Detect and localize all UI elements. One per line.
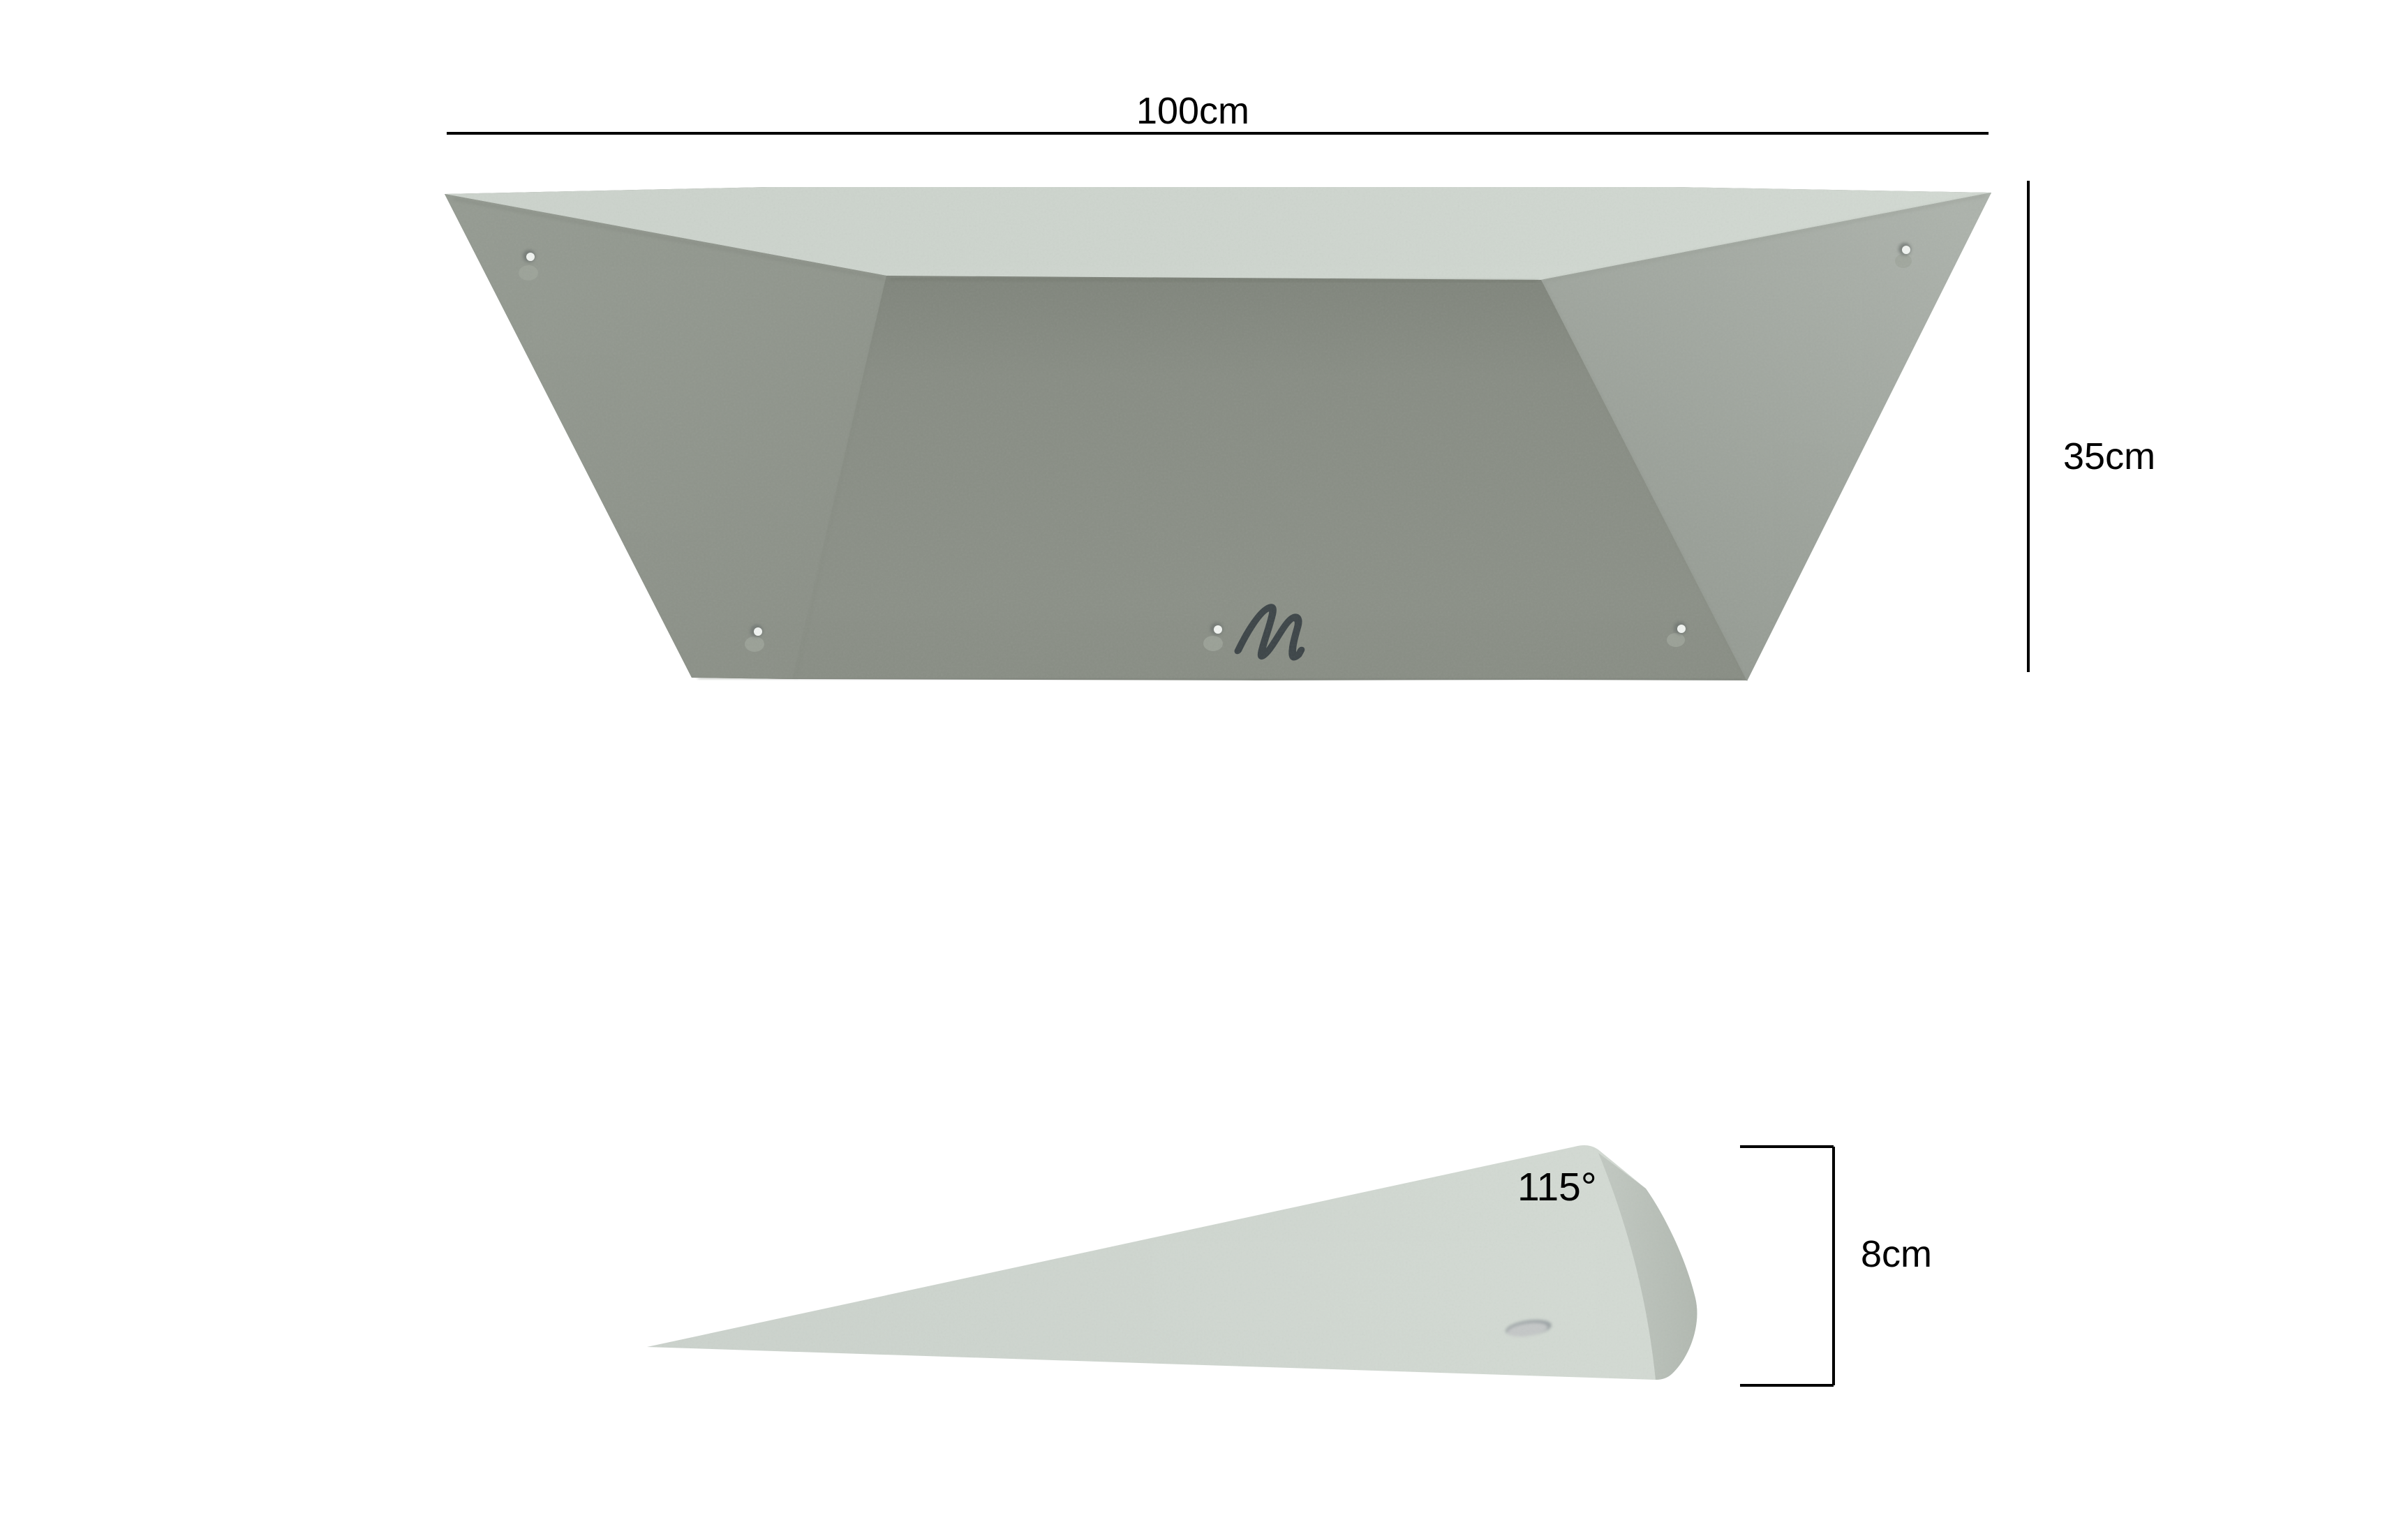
svg-text:35cm: 35cm [2063, 435, 2155, 477]
svg-text:115°: 115° [1517, 1165, 1597, 1209]
svg-text:100cm: 100cm [1136, 90, 1249, 132]
svg-text:8cm: 8cm [1861, 1233, 1932, 1275]
